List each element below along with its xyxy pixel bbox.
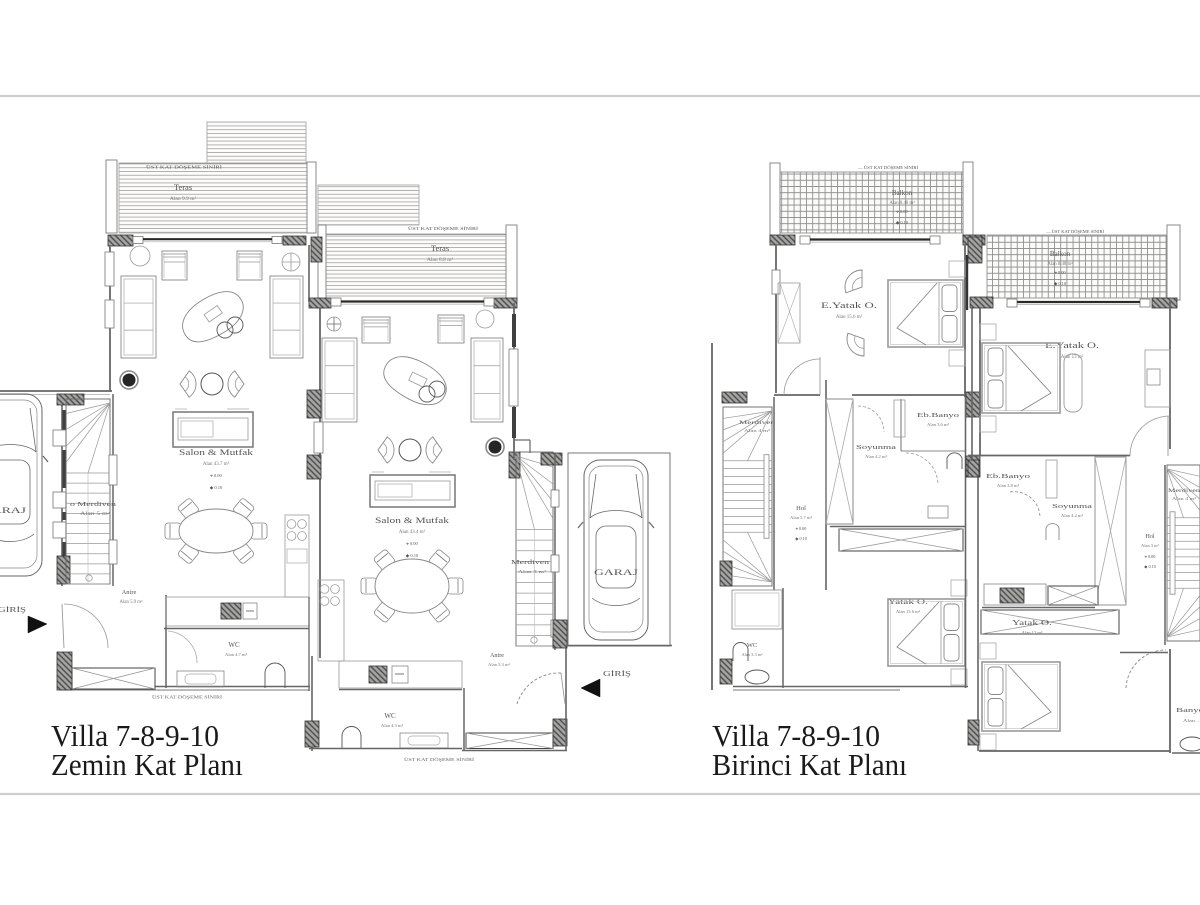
svg-text:Alan 3 m²: Alan 3 m² [1141,543,1159,548]
svg-text:Alan 5 m²: Alan 5 m² [80,511,111,517]
svg-text:Alan 8.8 m²: Alan 8.8 m² [427,257,454,263]
svg-text:◆ 0.10: ◆ 0.10 [1054,281,1067,286]
svg-text:Alan 8.48 m²: Alan 8.48 m² [1047,261,1073,267]
svg-text:GARAJ: GARAJ [0,505,27,515]
svg-text:Zemin Kat Planı: Zemin Kat Planı [51,747,243,782]
svg-text:Teras: Teras [174,182,192,192]
svg-text:WC: WC [747,642,757,649]
svg-text:ÜST KAT DÖŞEME SİNİRİ: ÜST KAT DÖŞEME SİNİRİ [146,165,223,170]
svg-text:Alan 43.4 m²: Alan 43.4 m² [399,529,426,535]
svg-text:Eb.Banyo: Eb.Banyo [986,473,1030,480]
svg-text:Alan 5.9 m²: Alan 5.9 m² [120,599,143,605]
svg-text:E.Yatak O.: E.Yatak O. [821,301,877,310]
svg-text:Antre: Antre [122,589,137,596]
svg-text:Salon & Mutfak: Salon & Mutfak [375,516,449,525]
svg-text:WC: WC [228,641,240,649]
svg-text:Balkon: Balkon [1050,250,1071,258]
svg-text:Alan 9.9 m²: Alan 9.9 m² [170,196,197,202]
svg-text:Birinci Kat Planı: Birinci Kat Planı [712,747,907,782]
svg-text:⌖ 0.00: ⌖ 0.00 [1054,270,1066,275]
svg-text:Alan 4 m²: Alan 4 m² [1172,496,1197,501]
svg-text:Merdiven: Merdiven [511,560,549,566]
svg-text:Hol: Hol [796,505,806,512]
svg-text:Alan 13 m²: Alan 13 m² [1022,630,1043,635]
svg-text:WC: WC [384,712,396,720]
svg-text:Salon & Mutfak: Salon & Mutfak [179,448,253,457]
svg-text:Banyo: Banyo [1176,707,1200,714]
svg-text:◆ 0.10: ◆ 0.10 [1144,564,1156,569]
svg-text:Soyunma: Soyunma [856,444,896,451]
svg-text:Eb.Banyo: Eb.Banyo [917,412,959,419]
svg-text:Alan 4.7 m²: Alan 4.7 m² [225,652,248,657]
svg-text:⌖ 0.00: ⌖ 0.00 [406,541,418,546]
svg-text:Alan 15.6 m²: Alan 15.6 m² [836,314,863,320]
svg-text:◆ 0.10: ◆ 0.10 [896,220,909,225]
svg-text:ÜST KAT DÖŞEME SİNİRİ: ÜST KAT DÖŞEME SİNİRİ [152,695,223,700]
svg-text:Alan 43.7 m²: Alan 43.7 m² [203,461,230,467]
svg-text:o Merdiven: o Merdiven [70,501,116,508]
svg-text:Teras: Teras [431,243,449,253]
svg-text:Alan 3.8 m²: Alan 3.8 m² [997,483,1020,488]
svg-text:— ÜST KAT DÖŞEME SİNİRİ: — ÜST KAT DÖŞEME SİNİRİ [857,165,919,170]
svg-text:GİRİŞ: GİRİŞ [0,606,26,614]
svg-text:◆ 0.10: ◆ 0.10 [210,485,223,490]
svg-text:Alan 4.2 m²: Alan 4.2 m² [1061,513,1084,518]
svg-text:Merdiven: Merdiven [739,420,775,426]
svg-text:◆ 0.10: ◆ 0.10 [406,553,419,558]
svg-text:⌖ 0.00: ⌖ 0.00 [796,526,807,531]
svg-text:Hol: Hol [1145,533,1155,540]
svg-text:Alan 13.6 m²: Alan 13.6 m² [896,609,921,614]
svg-text:⌖ 0.00: ⌖ 0.00 [896,209,908,214]
svg-text:— ÜST KAT DÖŞEME SİNİRİ: — ÜST KAT DÖŞEME SİNİRİ [1045,229,1105,234]
svg-text:ÜST KAT DÖŞEME SİNİRİ: ÜST KAT DÖŞEME SİNİRİ [404,757,475,762]
svg-text:Alan 4.3 m²: Alan 4.3 m² [381,723,404,728]
svg-text:Balkon: Balkon [892,189,913,197]
svg-text:⌖ 0.00: ⌖ 0.00 [1145,554,1156,559]
svg-text:GARAJ: GARAJ [594,567,639,577]
svg-text:Soyunma: Soyunma [1052,503,1092,510]
svg-text:Alan 5.7 m²: Alan 5.7 m² [790,515,813,520]
svg-text:GİRİŞ: GİRİŞ [603,670,631,678]
svg-text:Antre: Antre [490,652,504,659]
svg-text:Alan 3 m²: Alan 3 m² [518,569,547,574]
svg-text:Alan 3.6 m²: Alan 3.6 m² [927,422,950,427]
svg-text:⌖ 0.00: ⌖ 0.00 [210,473,222,478]
svg-text:Alan 3.3 m²: Alan 3.3 m² [742,652,764,657]
svg-text:◆ 0.10: ◆ 0.10 [795,536,807,541]
svg-text:Alan 4 m²: Alan 4 m² [744,428,771,433]
svg-text:Alan ...: Alan ... [1183,718,1200,723]
svg-text:Yatak O.: Yatak O. [1012,619,1052,627]
svg-text:Alan 4.2 m²: Alan 4.2 m² [865,454,888,459]
svg-text:ÜST KAT DÖŞEME SİNİRİ: ÜST KAT DÖŞEME SİNİRİ [408,226,479,231]
svg-text:Alan 3.3 m²: Alan 3.3 m² [488,662,511,667]
svg-text:Alan 8.48 m²: Alan 8.48 m² [889,200,915,206]
svg-text:Merdiven: Merdiven [1168,488,1200,494]
